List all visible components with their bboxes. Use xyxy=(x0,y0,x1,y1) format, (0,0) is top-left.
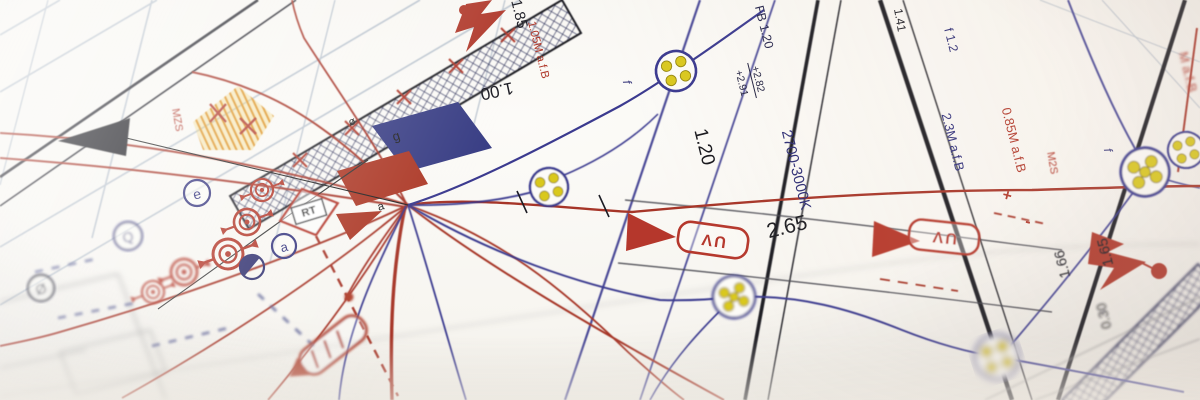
wiring-plan-photo: e Q a Ø RT xyxy=(0,0,1200,400)
letter-circle-q: Q xyxy=(114,222,142,250)
letter-circle-a: a xyxy=(272,234,296,258)
uv2-label: UV xyxy=(930,227,958,247)
letter-circle-e: e xyxy=(184,180,210,206)
uv1-label: UV xyxy=(699,230,727,250)
plan-drawing: e Q a Ø RT xyxy=(0,0,1200,400)
letter-circle-phi: Ø xyxy=(28,275,54,301)
uv2-tag: UV xyxy=(908,218,981,255)
